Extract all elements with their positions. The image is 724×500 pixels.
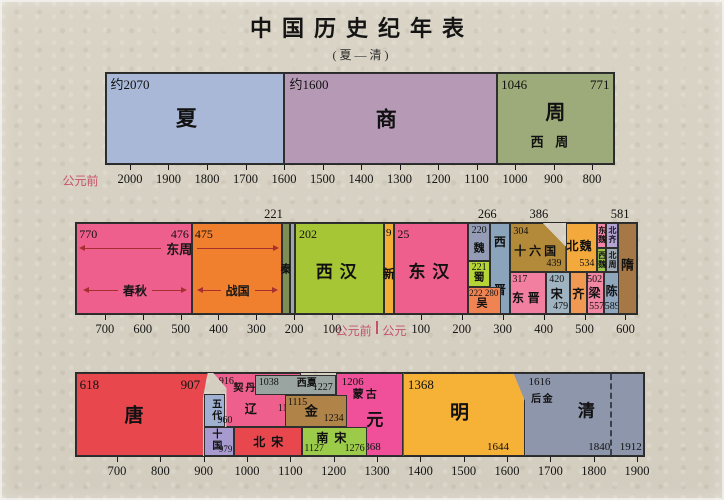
axis-label-400: 400 xyxy=(534,322,553,337)
label-xin-0: 9 xyxy=(386,228,392,239)
block-jin: 1115金1234 xyxy=(285,395,347,427)
label-ming-0: 1368 xyxy=(408,378,434,391)
axis-label-1600: 1600 xyxy=(272,172,297,187)
axis-tick-1300 xyxy=(377,457,378,462)
label-nansong-0: 南宋 xyxy=(316,432,352,444)
block-wei: 220魏 xyxy=(468,223,490,261)
axis-label-700: 700 xyxy=(108,464,127,479)
axis-label-1500: 1500 xyxy=(310,172,335,187)
label-zhanguo-0: 475 xyxy=(195,228,213,240)
label-wu-0: 222 280 xyxy=(469,289,498,298)
axis-label-1900: 1900 xyxy=(156,172,181,187)
label-qidan-liao-0: 916 xyxy=(219,377,234,387)
axis-tick-600 xyxy=(143,315,144,320)
label-xihan-0: 202 xyxy=(299,228,317,240)
axis-label-1400: 1400 xyxy=(408,464,433,479)
block-xiwei: 西魏 xyxy=(597,248,606,273)
arrow-line xyxy=(152,290,181,291)
era-label-公元前: 公元前 xyxy=(336,322,372,339)
label-houjin-qing-3: 1840 xyxy=(588,442,610,453)
block-xin: 9新 xyxy=(384,223,394,314)
axis-tick-800 xyxy=(592,165,593,170)
block-ming: 1368明1644 xyxy=(403,373,525,456)
axis-tick-1700 xyxy=(246,165,247,170)
label-beisong-0: 北宋 xyxy=(253,436,289,448)
axis-label-1300: 1300 xyxy=(364,464,389,479)
era-divider-bar xyxy=(376,321,378,334)
block-shu: 221蜀 xyxy=(468,261,490,286)
axis-tick-1600 xyxy=(284,165,285,170)
label-xijin-0: 西 xyxy=(494,236,506,248)
axis-tick-200 xyxy=(462,315,463,320)
block-donghan: 25东汉 xyxy=(394,223,469,314)
block-wu: 222 280吴 xyxy=(468,287,501,314)
label-houjin-qing-4: 1912 xyxy=(620,442,642,453)
axis-tick-200 xyxy=(294,315,295,320)
label-donghan-1: 东汉 xyxy=(408,264,456,281)
axis-label-900: 900 xyxy=(544,172,563,187)
axis-label-1500: 1500 xyxy=(451,464,476,479)
arrow-label-战国: 战国 xyxy=(221,282,255,299)
label-jin-2: 1234 xyxy=(324,414,344,424)
label-shiliuguo-2: 439 xyxy=(547,259,562,269)
label-shiliuguo-0: 304 xyxy=(513,227,528,237)
axis-tick-100 xyxy=(332,315,333,320)
label-chen-0: 陈 xyxy=(606,285,618,297)
label-menggu-yuan-2: 元 xyxy=(366,412,383,429)
block-zhanguo: 475 xyxy=(192,223,282,314)
label-shiliuguo-1: 十六国 xyxy=(514,245,559,257)
axis-tick-1300 xyxy=(400,165,401,170)
axis-label-1100: 1100 xyxy=(278,464,303,479)
axis-label-800: 800 xyxy=(151,464,170,479)
axis-tick-1900 xyxy=(168,165,169,170)
label-menggu-yuan-1: 蒙古 xyxy=(353,390,379,401)
axis-band-donghan-to-sui: 700600500400300200100100200300400500600公… xyxy=(75,315,638,341)
label-dongjin-1: 东晋 xyxy=(512,292,543,304)
arrow-line xyxy=(89,290,118,291)
axis-tick-900 xyxy=(204,457,205,462)
axis-label-400: 400 xyxy=(209,322,228,337)
axis-tick-2000 xyxy=(130,165,131,170)
paper-background: 中国历史纪年表 (夏—清) 约2070夏约1600商1046771周西周2000… xyxy=(0,0,724,500)
axis-tick-1100 xyxy=(477,165,478,170)
label-beiwei-1: 534 xyxy=(579,259,594,269)
axis-tick-1400 xyxy=(420,457,421,462)
label-zhou-xizhou-0: 1046 xyxy=(501,78,527,91)
label-xixia-2: 1227 xyxy=(313,383,333,393)
axis-label-1100: 1100 xyxy=(464,172,489,187)
block-dongjin: 317东晋 xyxy=(510,272,546,314)
axis-tick-1000 xyxy=(515,165,516,170)
era-label-公元前: 公元前 xyxy=(63,172,99,189)
axis-label-500: 500 xyxy=(171,322,190,337)
axis-tick-1500 xyxy=(464,457,465,462)
block-beisong: 北宋 xyxy=(234,427,302,456)
float-label-221: 221 xyxy=(264,207,283,222)
label-nansong-2: 1276 xyxy=(345,444,365,454)
axis-tick-500 xyxy=(181,315,182,320)
arrow-line xyxy=(203,290,220,291)
block-liang: 502梁557 xyxy=(587,272,605,314)
chart-stage: 约2070夏约1600商1046771周西周200019001800170016… xyxy=(0,0,724,500)
axis-label-200: 200 xyxy=(285,322,304,337)
label-sui-0: 隋 xyxy=(621,258,634,271)
label-xihan-1: 西汉 xyxy=(316,264,364,281)
axis-tick-700 xyxy=(117,457,118,462)
label-beizhou-0: 北周 xyxy=(608,251,616,269)
label-xiwei-0: 西魏 xyxy=(598,251,606,269)
label-liang-2: 557 xyxy=(589,302,604,312)
block-chen: 陈589 xyxy=(604,272,619,314)
axis-tick-1700 xyxy=(550,457,551,462)
label-liang-1: 梁 xyxy=(589,287,601,299)
arrowhead-right-icon xyxy=(181,287,187,293)
axis-tick-900 xyxy=(554,165,555,170)
block-shiguo: 十国979 xyxy=(204,427,234,456)
axis-label-1800: 1800 xyxy=(581,464,606,479)
label-shang-1: 商 xyxy=(376,110,397,131)
axis-tick-600 xyxy=(625,315,626,320)
label-donghan-0: 25 xyxy=(397,228,409,240)
arrow-line xyxy=(85,248,161,249)
block-chunqiu: 770476 xyxy=(76,223,192,314)
block-zhou-xizhou: 1046771周西周 xyxy=(497,73,614,164)
block-xihan: 202西汉 xyxy=(295,223,384,314)
label-qidan-liao-2: 辽 xyxy=(245,403,257,415)
label-liu-song-1: 宋 xyxy=(551,288,563,300)
block-liu-song: 420宋479 xyxy=(546,272,571,314)
block-nansong: 南宋11271276 xyxy=(302,427,367,456)
axis-tick-1200 xyxy=(334,457,335,462)
label-shiguo-1: 979 xyxy=(219,445,233,454)
label-xixia-0: 1038 xyxy=(259,378,279,388)
axis-tick-500 xyxy=(585,315,586,320)
axis-label-300: 300 xyxy=(493,322,512,337)
axis-label-100: 100 xyxy=(411,322,430,337)
axis-label-1700: 1700 xyxy=(233,172,258,187)
axis-label-600: 600 xyxy=(133,322,152,337)
arrow-line xyxy=(255,290,272,291)
label-liu-song-2: 479 xyxy=(553,302,568,312)
block-xia: 约2070夏 xyxy=(106,73,284,164)
axis-label-1400: 1400 xyxy=(349,172,374,187)
axis-tick-400 xyxy=(218,315,219,320)
block-nan-qi: 齐 xyxy=(570,272,586,314)
axis-tick-1500 xyxy=(323,165,324,170)
axis-label-600: 600 xyxy=(616,322,635,337)
arrowhead-right-icon xyxy=(272,287,278,293)
axis-label-200: 200 xyxy=(452,322,471,337)
band-donghan-to-sui: 770476475秦202西汉9新25东汉220魏221蜀西晋222 280吴3… xyxy=(75,222,638,315)
block-qin: 秦 xyxy=(282,223,289,314)
axis-tick-400 xyxy=(544,315,545,320)
label-xia-0: 约2070 xyxy=(111,78,150,91)
label-shang-0: 约1600 xyxy=(290,78,329,91)
axis-tick-300 xyxy=(256,315,257,320)
label-zhou-xizhou-1: 771 xyxy=(590,78,610,91)
float-label-960: 960 xyxy=(217,415,232,426)
axis-tick-100 xyxy=(421,315,422,320)
axis-label-1700: 1700 xyxy=(538,464,563,479)
axis-label-700: 700 xyxy=(95,322,114,337)
label-ming-1: 明 xyxy=(450,403,469,422)
axis-tick-1200 xyxy=(438,165,439,170)
era-label-公元: 公元 xyxy=(382,322,406,339)
band-tang-to-qing: 618907唐五代十国979916契丹辽11251206蒙古元13681038西… xyxy=(75,372,645,457)
axis-label-1000: 1000 xyxy=(503,172,528,187)
arrowhead-right-icon xyxy=(273,245,279,251)
label-qidan-liao-1: 契丹 xyxy=(233,384,257,394)
block-sui: 隋 xyxy=(618,223,637,314)
arrow-line xyxy=(197,248,273,249)
block-beiwei: 北魏534 xyxy=(566,223,597,272)
label-beiqi-0: 北齐 xyxy=(608,226,616,244)
axis-tick-1800 xyxy=(207,165,208,170)
axis-label-800: 800 xyxy=(583,172,602,187)
axis-label-1800: 1800 xyxy=(195,172,220,187)
axis-label-1600: 1600 xyxy=(495,464,520,479)
block-tang: 618907唐 xyxy=(76,373,208,456)
block-houjin-qing: 1616后金清18401912 xyxy=(513,373,644,456)
label-wei-0: 220 xyxy=(472,226,487,236)
float-label-266: 266 xyxy=(478,207,497,222)
axis-label-500: 500 xyxy=(575,322,594,337)
axis-band-xia-shang-zhou: 2000190018001700160015001400130012001100… xyxy=(105,165,615,191)
band-xia-shang-zhou: 约2070夏约1600商1046771周西周 xyxy=(105,72,615,165)
block-xixia: 1038西夏1227 xyxy=(255,375,336,395)
block-beizhou: 北周 xyxy=(606,248,618,273)
span-arrow-春秋: 春秋 xyxy=(83,285,187,295)
axis-tick-300 xyxy=(503,315,504,320)
axis-label-2000: 2000 xyxy=(117,172,142,187)
label-menggu-yuan-0: 1206 xyxy=(342,377,364,388)
label-dongjin-0: 317 xyxy=(512,275,527,285)
label-wei-1: 魏 xyxy=(474,243,485,254)
label-dongwei-0: 东魏 xyxy=(598,226,606,244)
axis-label-300: 300 xyxy=(247,322,266,337)
label-zhou-xizhou-2: 周 xyxy=(545,103,565,123)
block-dongwei: 东魏 xyxy=(597,223,606,248)
axis-label-1300: 1300 xyxy=(387,172,412,187)
label-shu-1: 蜀 xyxy=(474,272,485,283)
label-chunqiu-0: 770 xyxy=(79,228,97,240)
axis-tick-700 xyxy=(105,315,106,320)
arrow-label-春秋: 春秋 xyxy=(118,282,152,299)
label-nansong-1: 1127 xyxy=(304,444,324,454)
axis-tick-1800 xyxy=(594,457,595,462)
label-wu-1: 吴 xyxy=(476,298,487,309)
axis-tick-1100 xyxy=(290,457,291,462)
axis-band-tang-to-qing: 7008009001000110012001300140015001600170… xyxy=(75,457,645,483)
axis-tick-800 xyxy=(160,457,161,462)
label-beiwei-0: 北魏 xyxy=(566,240,592,252)
label-houjin-qing-1: 后金 xyxy=(531,395,554,405)
block-shiliuguo: 304十六国439 xyxy=(510,223,566,272)
block-shang: 约1600商 xyxy=(284,73,496,164)
axis-label-1200: 1200 xyxy=(321,464,346,479)
span-arrow-战国: 战国 xyxy=(197,285,278,295)
axis-tick-1400 xyxy=(361,165,362,170)
axis-tick-1600 xyxy=(507,457,508,462)
label-tang-0: 618 xyxy=(80,378,100,391)
label-tang-1: 907 xyxy=(181,378,201,391)
label-tang-2: 唐 xyxy=(124,407,143,426)
axis-label-900: 900 xyxy=(194,464,213,479)
label-ming-2: 1644 xyxy=(487,442,509,453)
arrow-label-东周: 东周 xyxy=(161,239,197,258)
float-label-581: 581 xyxy=(611,207,630,222)
label-houjin-qing-0: 1616 xyxy=(529,377,551,388)
axis-label-1000: 1000 xyxy=(235,464,260,479)
span-arrow-东周: 东周 xyxy=(79,243,279,253)
label-nan-qi-0: 齐 xyxy=(572,288,584,300)
float-label-386: 386 xyxy=(529,207,548,222)
axis-label-1900: 1900 xyxy=(625,464,650,479)
axis-tick-1000 xyxy=(247,457,248,462)
axis-tick-1900 xyxy=(637,457,638,462)
label-jin-1: 金 xyxy=(305,405,318,418)
label-liu-song-0: 420 xyxy=(549,275,564,285)
label-zhou-xizhou-3: 西周 xyxy=(531,135,580,148)
block-beiqi: 北齐 xyxy=(606,223,618,248)
label-xia-1: 夏 xyxy=(176,108,197,129)
label-houjin-qing-2: 清 xyxy=(578,403,595,420)
axis-label-1200: 1200 xyxy=(426,172,451,187)
label-liang-0: 502 xyxy=(587,275,602,285)
